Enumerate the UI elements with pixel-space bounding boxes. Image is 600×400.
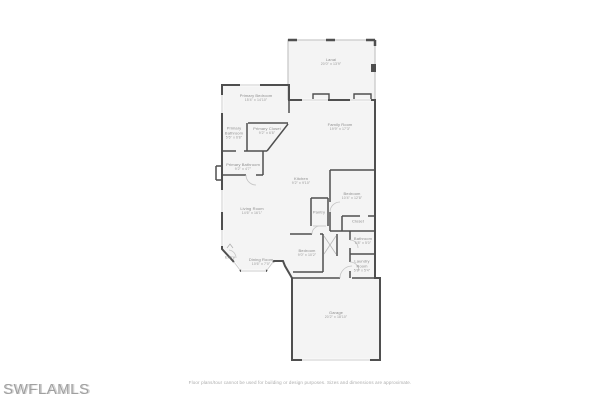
room-label-closet: Closet: [352, 218, 364, 223]
room-label-living-room: Living Room14'6" x 16'1": [240, 206, 263, 216]
room-label-bedroom-2: Bedroom9'0" x 10'2": [298, 248, 316, 258]
room-dims: 5'8" x 5'0": [354, 241, 372, 246]
room-label-family-room: Family Room19'9" x 17'3": [328, 122, 353, 132]
room-name: Closet: [352, 218, 364, 223]
room-dims: 20'2" x 18'10": [325, 315, 348, 320]
room-label-garage: Garage20'2" x 18'10": [325, 310, 348, 320]
room-dims: 20'0" x 13'9": [321, 62, 342, 67]
room-name: Laundry Room: [354, 259, 369, 269]
room-label-primary-bathroom-1: Primary Bathroom5'6" x 6'8": [223, 126, 245, 141]
room-label-primary-bedroom: Primary Bedroom15'4" x 14'10": [240, 93, 273, 103]
room-dims: 10'6" x 7'0": [249, 262, 273, 267]
room-label-bedroom-1: Bedroom10'4" x 12'8": [342, 191, 363, 201]
room-dims: 10'4" x 12'8": [342, 196, 363, 201]
floorplan-drawing: [0, 0, 600, 400]
room-label-entry: Entry: [225, 254, 235, 259]
room-label-pantry: Pantry: [313, 209, 325, 214]
room-label-primary-bathroom-2: Primary Bathroom9'2" x 4'7": [226, 162, 260, 172]
lanai-door-post: [371, 64, 376, 72]
room-name: Primary Bathroom: [225, 126, 243, 136]
room-label-kitchen: Kitchen9'2" x 9'10": [292, 176, 310, 186]
room-name: Entry: [225, 254, 235, 259]
room-name: Pantry: [313, 209, 325, 214]
room-label-laundry-room: Laundry Room5'8" x 5'4": [351, 259, 373, 274]
room-label-lanai: Lanai20'0" x 13'9": [321, 57, 342, 67]
room-dims: 14'6" x 16'1": [240, 211, 263, 216]
room-dims: 9'2" x 6'8": [253, 131, 281, 136]
room-dims: 5'8" x 5'4": [351, 269, 373, 274]
room-dims: 9'2" x 4'7": [226, 167, 260, 172]
room-dims: 15'4" x 14'10": [240, 98, 273, 103]
watermark-swflamls: SWFLAMLS: [3, 381, 90, 398]
room-label-primary-closet: Primary Closet9'2" x 6'8": [253, 126, 281, 136]
disclaimer-text: Floor plans/tour cannot be used for buil…: [189, 380, 412, 385]
room-dims: 9'2" x 9'10": [292, 181, 310, 186]
room-label-dining-room: Dining Room10'6" x 7'0": [249, 257, 273, 267]
floorplan-page: Lanai20'0" x 13'9" Primary Bedroom15'4" …: [0, 0, 600, 400]
room-dims: 5'6" x 6'8": [223, 136, 245, 141]
room-dims: 19'9" x 17'3": [328, 127, 353, 132]
lanai-area: [288, 40, 375, 100]
room-dims: 9'0" x 10'2": [298, 253, 316, 258]
room-label-bathroom: Bathroom5'8" x 5'0": [354, 236, 372, 246]
